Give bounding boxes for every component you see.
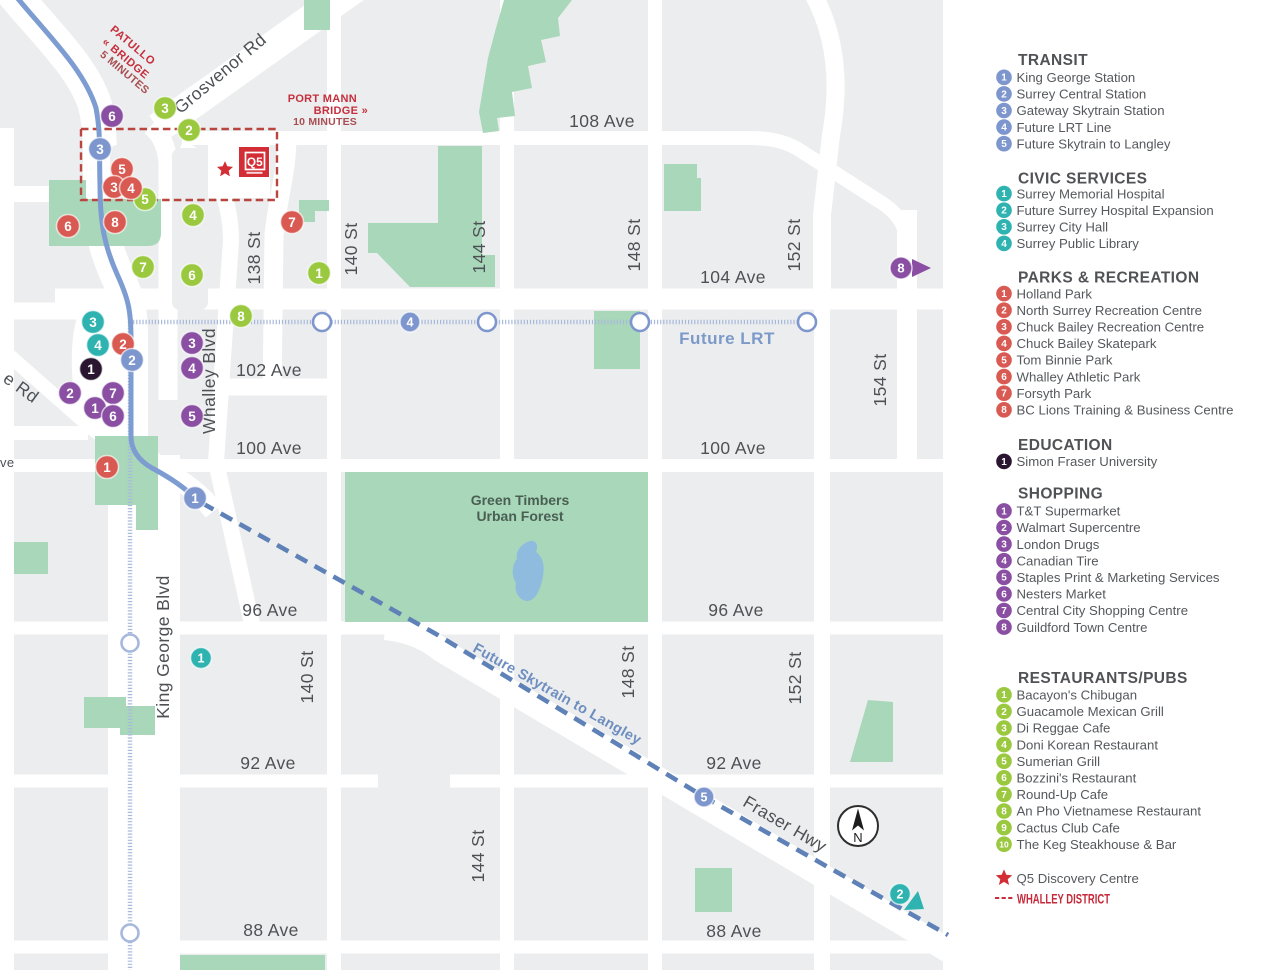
svg-text:Canadian Tire: Canadian Tire <box>1017 553 1099 568</box>
svg-text:3: 3 <box>1001 723 1007 734</box>
svg-text:1: 1 <box>87 362 95 377</box>
svg-text:3: 3 <box>161 101 169 116</box>
svg-text:148 St: 148 St <box>618 646 638 699</box>
svg-text:WHALLEY DISTRICT: WHALLEY DISTRICT <box>1017 892 1110 907</box>
svg-text:88 Ave: 88 Ave <box>243 920 299 940</box>
svg-text:Guacamole Mexican Grill: Guacamole Mexican Grill <box>1017 704 1164 719</box>
svg-text:3: 3 <box>96 142 104 157</box>
svg-text:King George Blvd: King George Blvd <box>153 575 173 719</box>
svg-text:1: 1 <box>1001 457 1007 468</box>
svg-text:T&T Supermarket: T&T Supermarket <box>1017 504 1121 519</box>
svg-text:1: 1 <box>91 401 99 416</box>
svg-text:7: 7 <box>1001 790 1007 801</box>
svg-text:6: 6 <box>188 268 196 283</box>
svg-text:3: 3 <box>1001 322 1007 333</box>
svg-text:138 St: 138 St <box>244 232 264 285</box>
svg-text:1: 1 <box>1001 189 1007 200</box>
svg-text:Q5 Discovery Centre: Q5 Discovery Centre <box>1017 871 1139 886</box>
svg-text:154 St: 154 St <box>870 354 890 407</box>
svg-text:2: 2 <box>897 888 904 902</box>
svg-text:6: 6 <box>109 409 117 424</box>
svg-text:Chuck Bailey Recreation Centre: Chuck Bailey Recreation Centre <box>1017 320 1205 335</box>
svg-text:1: 1 <box>103 460 111 475</box>
svg-text:Future LRT: Future LRT <box>679 329 775 348</box>
svg-text:3: 3 <box>89 315 97 330</box>
svg-text:Central City Shopping Centre: Central City Shopping Centre <box>1017 603 1189 618</box>
svg-text:1: 1 <box>1001 506 1007 517</box>
svg-text:King George Station: King George Station <box>1017 70 1136 85</box>
svg-text:4: 4 <box>407 316 414 330</box>
svg-text:Walmart Supercentre: Walmart Supercentre <box>1017 520 1141 535</box>
svg-text:Sumerian Grill: Sumerian Grill <box>1017 754 1101 769</box>
svg-text:SHOPPING: SHOPPING <box>1018 486 1103 503</box>
svg-text:Round-Up Cafe: Round-Up Cafe <box>1017 787 1109 802</box>
svg-text:EDUCATION: EDUCATION <box>1018 437 1113 454</box>
svg-text:Surrey Memorial Hospital: Surrey Memorial Hospital <box>1017 186 1165 201</box>
svg-text:5: 5 <box>1001 573 1007 584</box>
svg-text:92 Ave: 92 Ave <box>706 753 762 773</box>
svg-text:5: 5 <box>701 791 708 805</box>
svg-text:2: 2 <box>1001 707 1007 718</box>
svg-text:Q5: Q5 <box>247 155 263 169</box>
svg-text:2: 2 <box>185 123 193 138</box>
svg-text:Future Surrey Hospital Expansi: Future Surrey Hospital Expansion <box>1017 203 1214 218</box>
svg-text:140 St: 140 St <box>341 223 361 276</box>
svg-text:RESTAURANTS/PUBS: RESTAURANTS/PUBS <box>1018 670 1188 687</box>
svg-text:Staples Print & Marketing Serv: Staples Print & Marketing Services <box>1017 570 1220 585</box>
svg-text:2: 2 <box>128 353 136 368</box>
svg-text:Tom Binnie Park: Tom Binnie Park <box>1017 353 1113 368</box>
svg-text:TRANSIT: TRANSIT <box>1018 52 1088 69</box>
svg-text:7: 7 <box>1001 606 1007 617</box>
svg-text:100 Ave: 100 Ave <box>700 438 766 458</box>
svg-text:CIVIC SERVICES: CIVIC SERVICES <box>1018 171 1147 188</box>
svg-text:3: 3 <box>1001 106 1007 117</box>
svg-text:Holland Park: Holland Park <box>1017 286 1093 301</box>
svg-text:Surrey City Hall: Surrey City Hall <box>1017 220 1109 235</box>
svg-text:92 Ave: 92 Ave <box>240 753 296 773</box>
svg-text:N: N <box>853 830 862 845</box>
svg-text:London Drugs: London Drugs <box>1017 537 1100 552</box>
svg-text:Di Reggae Cafe: Di Reggae Cafe <box>1017 721 1111 736</box>
svg-text:4: 4 <box>1001 740 1007 751</box>
svg-text:6: 6 <box>1001 773 1007 784</box>
svg-text:Bozzini's Restaurant: Bozzini's Restaurant <box>1017 771 1137 786</box>
svg-text:148 St: 148 St <box>624 219 644 272</box>
svg-text:PORT MANN: PORT MANN <box>288 93 357 105</box>
svg-text:152 St: 152 St <box>785 652 805 705</box>
svg-text:3: 3 <box>1001 540 1007 551</box>
svg-text:8: 8 <box>1001 806 1007 817</box>
svg-text:5: 5 <box>1001 355 1007 366</box>
svg-text:1: 1 <box>1001 73 1007 84</box>
svg-text:9: 9 <box>1001 823 1007 834</box>
svg-text:5: 5 <box>188 409 196 424</box>
svg-text:5: 5 <box>1001 757 1007 768</box>
svg-text:4: 4 <box>1001 123 1007 134</box>
svg-text:5: 5 <box>141 192 149 207</box>
svg-text:7: 7 <box>288 215 296 230</box>
svg-text:2: 2 <box>1001 306 1007 317</box>
svg-text:1: 1 <box>315 266 323 281</box>
svg-text:4: 4 <box>189 208 197 223</box>
svg-text:4: 4 <box>94 338 102 353</box>
svg-text:5: 5 <box>1001 139 1007 150</box>
svg-text:102 Ave: 102 Ave <box>236 360 302 380</box>
svg-text:140 St: 140 St <box>297 651 317 704</box>
svg-text:4: 4 <box>188 361 196 376</box>
svg-text:North Surrey Recreation Centre: North Surrey Recreation Centre <box>1017 303 1202 318</box>
svg-text:96 Ave: 96 Ave <box>708 600 764 620</box>
svg-text:An Pho Vietnamese Restaurant: An Pho Vietnamese Restaurant <box>1017 804 1202 819</box>
svg-text:ve: ve <box>0 455 15 470</box>
svg-text:Urban Forest: Urban Forest <box>476 508 563 524</box>
svg-text:4: 4 <box>127 181 135 196</box>
svg-text:88 Ave: 88 Ave <box>706 921 762 941</box>
svg-text:3: 3 <box>1001 222 1007 233</box>
svg-text:6: 6 <box>1001 589 1007 600</box>
svg-text:Surrey Central Station: Surrey Central Station <box>1017 87 1147 102</box>
svg-text:104 Ave: 104 Ave <box>700 267 766 287</box>
svg-text:144 St: 144 St <box>469 221 489 274</box>
svg-text:10 MINUTES: 10 MINUTES <box>293 116 357 128</box>
svg-text:Nesters Market: Nesters Market <box>1017 587 1107 602</box>
svg-text:7: 7 <box>1001 389 1007 400</box>
svg-text:96 Ave: 96 Ave <box>242 600 298 620</box>
svg-text:Bacayon's Chibugan: Bacayon's Chibugan <box>1017 688 1138 703</box>
svg-text:4: 4 <box>1001 339 1007 350</box>
svg-text:6: 6 <box>1001 372 1007 383</box>
svg-text:144 St: 144 St <box>468 830 488 883</box>
svg-text:Whalley Athletic Park: Whalley Athletic Park <box>1017 369 1141 384</box>
svg-text:The Keg Steakhouse & Bar: The Keg Steakhouse & Bar <box>1017 837 1177 852</box>
svg-text:6: 6 <box>64 219 72 234</box>
svg-text:7: 7 <box>139 260 147 275</box>
svg-text:152 St: 152 St <box>784 219 804 272</box>
svg-text:8: 8 <box>1001 623 1007 634</box>
svg-text:1: 1 <box>198 652 205 666</box>
svg-text:2: 2 <box>1001 89 1007 100</box>
svg-text:8: 8 <box>111 215 119 230</box>
svg-text:Surrey Public Library: Surrey Public Library <box>1017 236 1140 251</box>
svg-text:PARKS & RECREATION: PARKS & RECREATION <box>1018 270 1199 287</box>
svg-text:6: 6 <box>108 109 116 124</box>
svg-text:8: 8 <box>237 309 245 324</box>
svg-text:Future Skytrain to Langley: Future Skytrain to Langley <box>1017 136 1171 151</box>
svg-text:Cactus Club Cafe: Cactus Club Cafe <box>1017 820 1120 835</box>
svg-text:Chuck Bailey Skatepark: Chuck Bailey Skatepark <box>1017 336 1157 351</box>
svg-text:2: 2 <box>1001 206 1007 217</box>
svg-text:4: 4 <box>1001 556 1007 567</box>
svg-text:1: 1 <box>1001 289 1007 300</box>
svg-text:Green Timbers: Green Timbers <box>471 492 570 508</box>
svg-text:108 Ave: 108 Ave <box>569 111 635 131</box>
svg-text:Guildford Town Centre: Guildford Town Centre <box>1017 620 1148 635</box>
svg-text:Gateway Skytrain Station: Gateway Skytrain Station <box>1017 103 1165 118</box>
svg-text:4: 4 <box>1001 239 1007 250</box>
svg-text:2: 2 <box>1001 523 1007 534</box>
svg-text:8: 8 <box>1001 405 1007 416</box>
svg-text:BC Lions Training & Business C: BC Lions Training & Business Centre <box>1017 403 1234 418</box>
svg-text:Future LRT Line: Future LRT Line <box>1017 120 1112 135</box>
svg-text:Simon Fraser University: Simon Fraser University <box>1017 454 1158 469</box>
svg-text:Doni Korean Restaurant: Doni Korean Restaurant <box>1017 737 1159 752</box>
svg-text:1: 1 <box>191 491 199 506</box>
svg-text:1: 1 <box>1001 690 1007 701</box>
svg-text:3: 3 <box>110 180 118 195</box>
svg-text:Forsyth Park: Forsyth Park <box>1017 386 1092 401</box>
svg-text:10: 10 <box>999 840 1009 850</box>
svg-text:3: 3 <box>188 336 196 351</box>
svg-text:7: 7 <box>109 386 117 401</box>
svg-text:5: 5 <box>118 162 126 177</box>
svg-text:100 Ave: 100 Ave <box>236 438 302 458</box>
svg-text:8: 8 <box>897 261 904 276</box>
svg-text:2: 2 <box>66 386 74 401</box>
